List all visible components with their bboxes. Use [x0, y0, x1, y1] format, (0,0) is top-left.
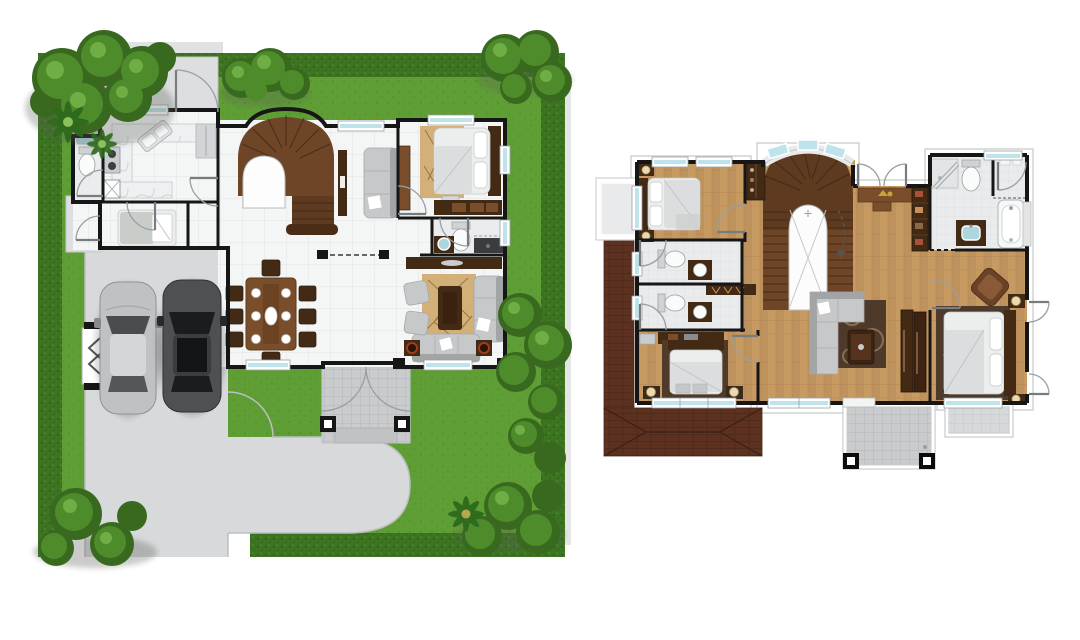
maid-single-bed — [118, 210, 176, 246]
master-toilet — [962, 160, 980, 191]
floor-plans-canvas — [0, 0, 1080, 640]
nook-sofa — [364, 148, 398, 218]
coffee-table — [438, 286, 462, 330]
bedroom1-bed — [434, 126, 501, 196]
porch-steps — [335, 428, 397, 443]
dark-gray-car — [157, 280, 227, 416]
ground-floor-site-plan — [25, 30, 573, 568]
center-balcony — [843, 403, 935, 469]
master-vanity — [956, 220, 986, 246]
bedroom3-headboard — [668, 340, 724, 350]
bedroom1-wardrobe — [399, 146, 410, 210]
maids-room — [118, 210, 176, 246]
side-table-1 — [404, 340, 420, 356]
armchair-1 — [403, 280, 429, 306]
master-bed — [944, 310, 1016, 396]
slatted-bench — [706, 284, 756, 295]
living-loveseat — [412, 334, 480, 362]
master-nightstand-top — [1008, 294, 1025, 308]
hall-wardrobe — [747, 162, 765, 200]
front-porch — [320, 367, 410, 443]
bedroom3-bench — [640, 334, 655, 344]
silver-car — [94, 282, 162, 418]
armchair-2 — [404, 311, 430, 336]
side-table-2 — [476, 340, 492, 356]
family-coffee-table — [848, 330, 874, 364]
upper-staircase — [760, 140, 856, 310]
bedroom3-lamp-left — [643, 386, 660, 399]
hedge-shadow — [565, 75, 571, 545]
kitchen-counter-lower — [112, 182, 172, 198]
floor-plan-illustration — [0, 0, 1080, 640]
bedroom3-lamp-right — [726, 386, 743, 399]
family-nook — [338, 148, 398, 218]
master-headboard — [1004, 310, 1016, 396]
bedroom3-bed — [662, 340, 728, 398]
bedroom2-bed — [639, 178, 700, 230]
fan-palm-bottom-right — [448, 496, 484, 532]
bathtub — [998, 200, 1024, 248]
balcony-door-threshold — [843, 398, 875, 407]
washer — [104, 180, 120, 198]
bath2-vanity — [434, 236, 454, 253]
stair-void — [243, 156, 285, 208]
master-shower — [931, 159, 959, 189]
bath2-shower — [474, 236, 503, 253]
tall-cabinet — [912, 187, 928, 251]
bedroom1-dresser — [434, 200, 502, 215]
